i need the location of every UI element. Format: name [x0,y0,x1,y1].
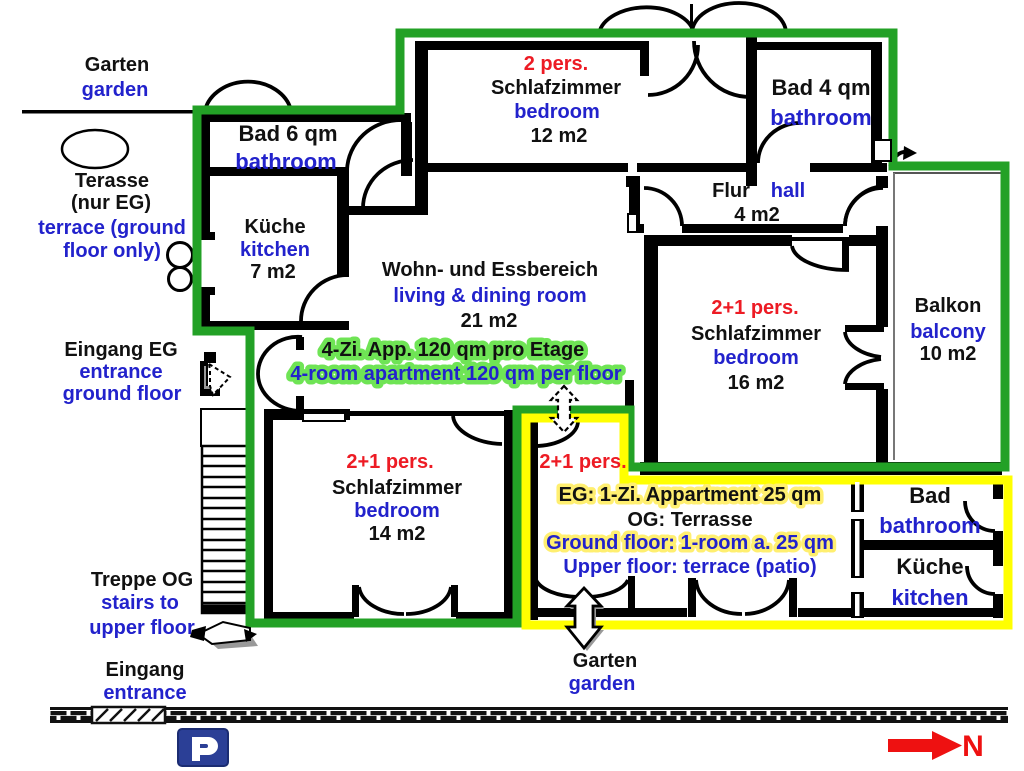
svg-text:21 m2: 21 m2 [461,310,518,332]
svg-text:EG: 1-Zi. Appartment 25 qm: EG: 1-Zi. Appartment 25 qm [559,484,822,506]
svg-text:Eingang EG: Eingang EG [64,339,177,361]
svg-text:Schlafzimmer: Schlafzimmer [491,77,621,99]
svg-text:7 m2: 7 m2 [250,261,296,283]
svg-text:Garten: Garten [85,54,149,76]
svg-text:living & dining room: living & dining room [393,285,586,307]
svg-text:Bad 6 qm: Bad 6 qm [238,121,337,146]
svg-text:bedroom: bedroom [354,500,440,522]
svg-text:kitchen: kitchen [240,239,310,261]
svg-text:bathroom: bathroom [235,149,336,174]
svg-text:OG: Terrasse: OG: Terrasse [627,509,752,531]
svg-text:balcony: balcony [910,321,986,343]
svg-text:Treppe OG: Treppe OG [91,569,193,591]
svg-text:garden: garden [82,79,149,101]
svg-text:Terasse: Terasse [75,170,149,192]
svg-text:Balkon: Balkon [915,295,982,317]
svg-text:Garten: Garten [573,650,637,672]
svg-text:Upper floor: terrace (patio): Upper floor: terrace (patio) [563,556,816,578]
svg-text:14 m2: 14 m2 [369,523,426,545]
svg-text:Eingang: Eingang [106,659,185,681]
svg-text:2+1 pers.: 2+1 pers. [711,297,798,319]
svg-text:10 m2: 10 m2 [920,343,977,365]
svg-text:Küche: Küche [896,554,963,579]
svg-text:upper floor: upper floor [89,617,195,639]
svg-text:2+1 pers.: 2+1 pers. [539,451,626,473]
svg-text:garden: garden [569,673,636,695]
svg-text:N: N [962,730,984,763]
svg-text:Flur: Flur [712,180,750,202]
svg-text:entrance: entrance [79,361,162,383]
svg-text:16 m2: 16 m2 [728,372,785,394]
svg-text:bathroom: bathroom [770,105,871,130]
svg-text:bathroom: bathroom [879,513,980,538]
svg-text:Schlafzimmer: Schlafzimmer [691,323,821,345]
svg-text:2 pers.: 2 pers. [524,53,588,75]
svg-text:2+1 pers.: 2+1 pers. [346,451,433,473]
svg-text:4-room apartment 120 qm per f: 4-room apartment 120 qm per floor [290,363,621,385]
svg-text:bedroom: bedroom [514,101,600,123]
svg-text:Ground floor: 1-room a. 25 qm: Ground floor: 1-room a. 25 qm [546,532,834,554]
svg-text:12 m2: 12 m2 [531,125,588,147]
svg-text:(nur EG): (nur EG) [71,192,151,214]
svg-text:hall: hall [771,180,805,202]
svg-text:entrance: entrance [103,682,186,704]
svg-text:Wohn- und Essbereich: Wohn- und Essbereich [382,259,598,281]
svg-text:kitchen: kitchen [891,585,968,610]
svg-text:Küche: Küche [244,216,305,238]
svg-text:stairs to: stairs to [101,592,179,614]
svg-text:Schlafzimmer: Schlafzimmer [332,477,462,499]
svg-text:Bad 4 qm: Bad 4 qm [771,75,870,100]
svg-text:bedroom: bedroom [713,347,799,369]
svg-text:Bad: Bad [909,483,951,508]
svg-text:floor only): floor only) [63,240,161,262]
svg-text:ground floor: ground floor [63,383,182,405]
svg-text:4 m2: 4 m2 [734,204,780,226]
svg-text:terrace (ground: terrace (ground [38,217,186,239]
svg-text:4-Zi. App. 120 qm pro Etage: 4-Zi. App. 120 qm pro Etage [322,339,585,361]
